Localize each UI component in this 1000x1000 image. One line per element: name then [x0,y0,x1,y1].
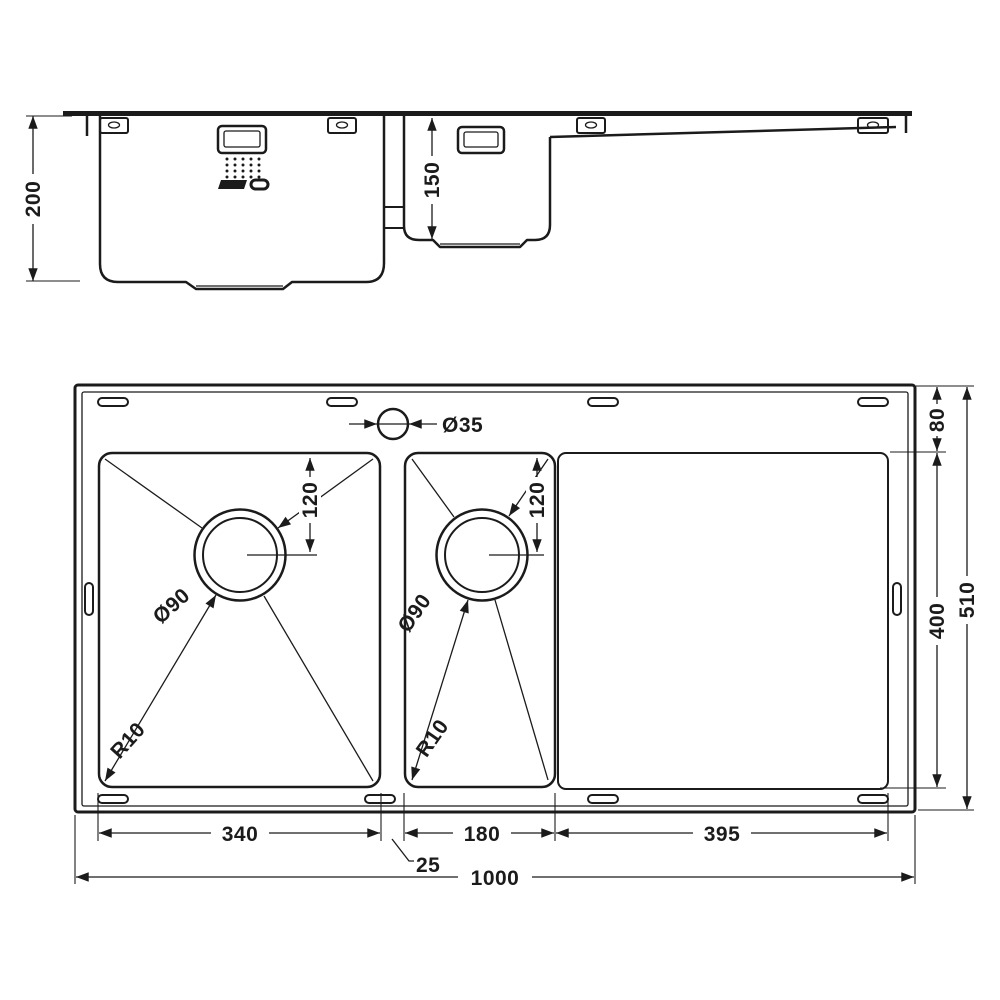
fixing-slot [588,398,618,406]
inter-bowl-channel [384,207,404,228]
bowl1-drain-group: Ø90 R10 120 [105,458,373,781]
fixing-slot [85,583,93,615]
bowl2-drain-offset-label: 120 [526,482,549,519]
dim-bowl2-depth-150: 150 [420,118,444,239]
sink-drawing-svg: 200 150 Ø [0,0,1000,1000]
drainer-plan [558,453,888,789]
bowl1-diagonal-d90-arrow [278,459,373,528]
bowl1-overflow-box [218,126,266,153]
plan-view: Ø35 Ø90 R10 120 Ø9 [75,385,979,890]
fixing-slot [858,795,888,803]
bowl2-overflow-inner [464,132,498,147]
dim-side-depth-200: 200 [21,116,80,281]
bowl2-diagonal [412,459,454,517]
bowl2-drain-group: Ø90 R10 120 [393,458,549,780]
side-elevation-view: 200 150 [21,111,912,289]
dim-side-depth-label: 200 [22,181,45,218]
dim-right-side: 80 400 510 [880,386,979,810]
bowl1-diagonal [264,596,373,781]
fixing-slot [365,795,395,803]
fixing-slot [98,795,128,803]
fixing-slot [98,398,128,406]
bowl1-side-profile [100,116,384,289]
bowl2-diagonal [495,600,548,780]
bowl2-drain-label: Ø90 [393,590,435,637]
dim-overall-width-label: 1000 [471,867,520,890]
bowl1-drain-offset-label: 120 [299,482,322,519]
divider-leader-line [392,839,414,861]
worktop-rim-line [63,111,912,116]
dim-bowl2-depth-label: 150 [421,162,444,199]
overflow-grille-dots [226,158,261,179]
fixing-slot [327,398,357,406]
bowl1-drain-label: Ø90 [149,584,195,629]
fixing-clip [328,118,356,133]
dim-bowl2-width-label: 180 [464,823,501,846]
tap-hole-group: Ø35 [349,409,483,439]
dim-bowl1-width-label: 340 [222,823,259,846]
technical-drawing-canvas: 200 150 Ø [0,0,1000,1000]
bowl1-radius-label: R10 [106,718,150,763]
fixing-slot [858,398,888,406]
bowl1-diagonal [105,459,202,528]
dim-divider-label: 25 [416,854,440,877]
bowl2-radius-label: R10 [412,715,454,761]
fixing-clip [577,118,605,133]
dim-drainer-width-label: 395 [704,823,741,846]
fixing-slot [893,583,901,615]
dim-overall-depth-label: 510 [956,582,979,619]
dim-bowls-depth-label: 400 [926,603,949,640]
bowl2-overflow-box [458,127,504,153]
dim-bottom: 340 180 395 25 1000 [75,793,915,890]
dim-tap-hole-label: Ø35 [442,414,483,437]
fixing-clip [858,118,888,133]
fixing-slot [588,795,618,803]
fixing-clip [100,118,128,133]
waste-ring-mark [251,180,268,189]
bowl1-overflow-inner [224,131,260,147]
waste-fitting-mark [218,180,247,189]
dim-rim-to-bowls-label: 80 [926,408,949,432]
fixing-slots-plan [85,398,901,803]
